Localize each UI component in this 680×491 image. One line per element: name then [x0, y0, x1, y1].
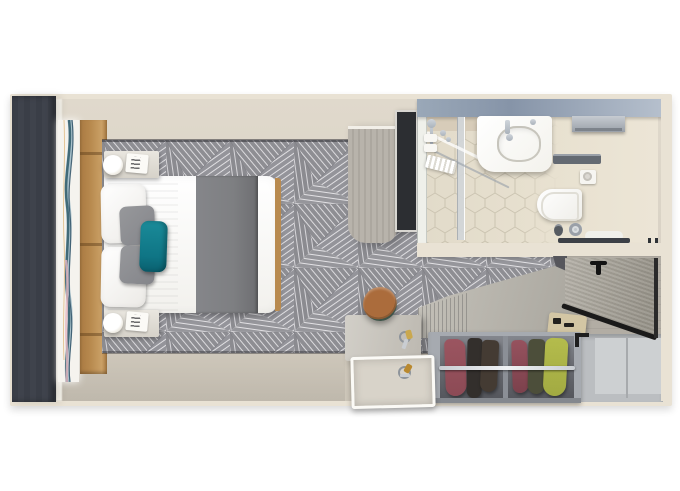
cabinet-panel-seam — [626, 338, 628, 398]
toilet-seat — [541, 192, 579, 221]
wardrobe-base — [428, 398, 581, 403]
table-lamp-bottom — [103, 313, 123, 333]
door-handle-stem — [596, 264, 601, 275]
door-edge-trim — [654, 258, 658, 338]
cabinet-corner-trim — [575, 333, 579, 347]
notepad-bottom — [125, 311, 149, 332]
soap-dish-top — [424, 134, 437, 142]
wall-tv — [395, 110, 418, 232]
right-wall — [661, 99, 667, 401]
shower-valve-2 — [446, 137, 451, 142]
shower-glass-wall — [417, 110, 427, 256]
screenshot-canvas — [0, 0, 680, 491]
toilet-paper-roll — [583, 172, 592, 181]
bathroom-bottom-wall — [417, 243, 663, 257]
cabinet-back-panel — [595, 338, 661, 394]
table-lamp-top — [103, 155, 123, 175]
bathroom-mirror-wall — [417, 99, 663, 117]
soap-dispenser — [530, 119, 536, 125]
bed-foot-frame — [275, 178, 281, 311]
shower-valve — [440, 130, 446, 136]
sink-basin — [497, 126, 541, 162]
teal-accent-pillow — [139, 221, 168, 273]
clothes-rail — [439, 366, 575, 370]
round-stool — [363, 287, 397, 321]
notepad-print — [131, 315, 141, 328]
waste-bin — [554, 224, 563, 236]
notepad-print — [131, 157, 141, 170]
faucet-spout — [506, 134, 513, 141]
towel-shelf-bar — [575, 128, 622, 131]
shower-head — [427, 119, 436, 128]
soap-dish-bottom — [424, 144, 437, 152]
wall-art-panel — [58, 120, 79, 382]
gray-bed-runner — [196, 176, 258, 313]
towel-rail — [553, 154, 601, 164]
notepad-top — [125, 153, 149, 174]
bench-items — [553, 318, 561, 324]
bench-items — [564, 323, 574, 327]
balcony-window-slab — [12, 96, 56, 402]
toilet-brush — [569, 223, 582, 236]
key-blade — [400, 374, 410, 377]
faucet — [505, 120, 510, 134]
shower-glass-divider — [457, 117, 465, 240]
divider-cabinet — [348, 126, 397, 243]
open-drawer-tray — [350, 355, 435, 409]
